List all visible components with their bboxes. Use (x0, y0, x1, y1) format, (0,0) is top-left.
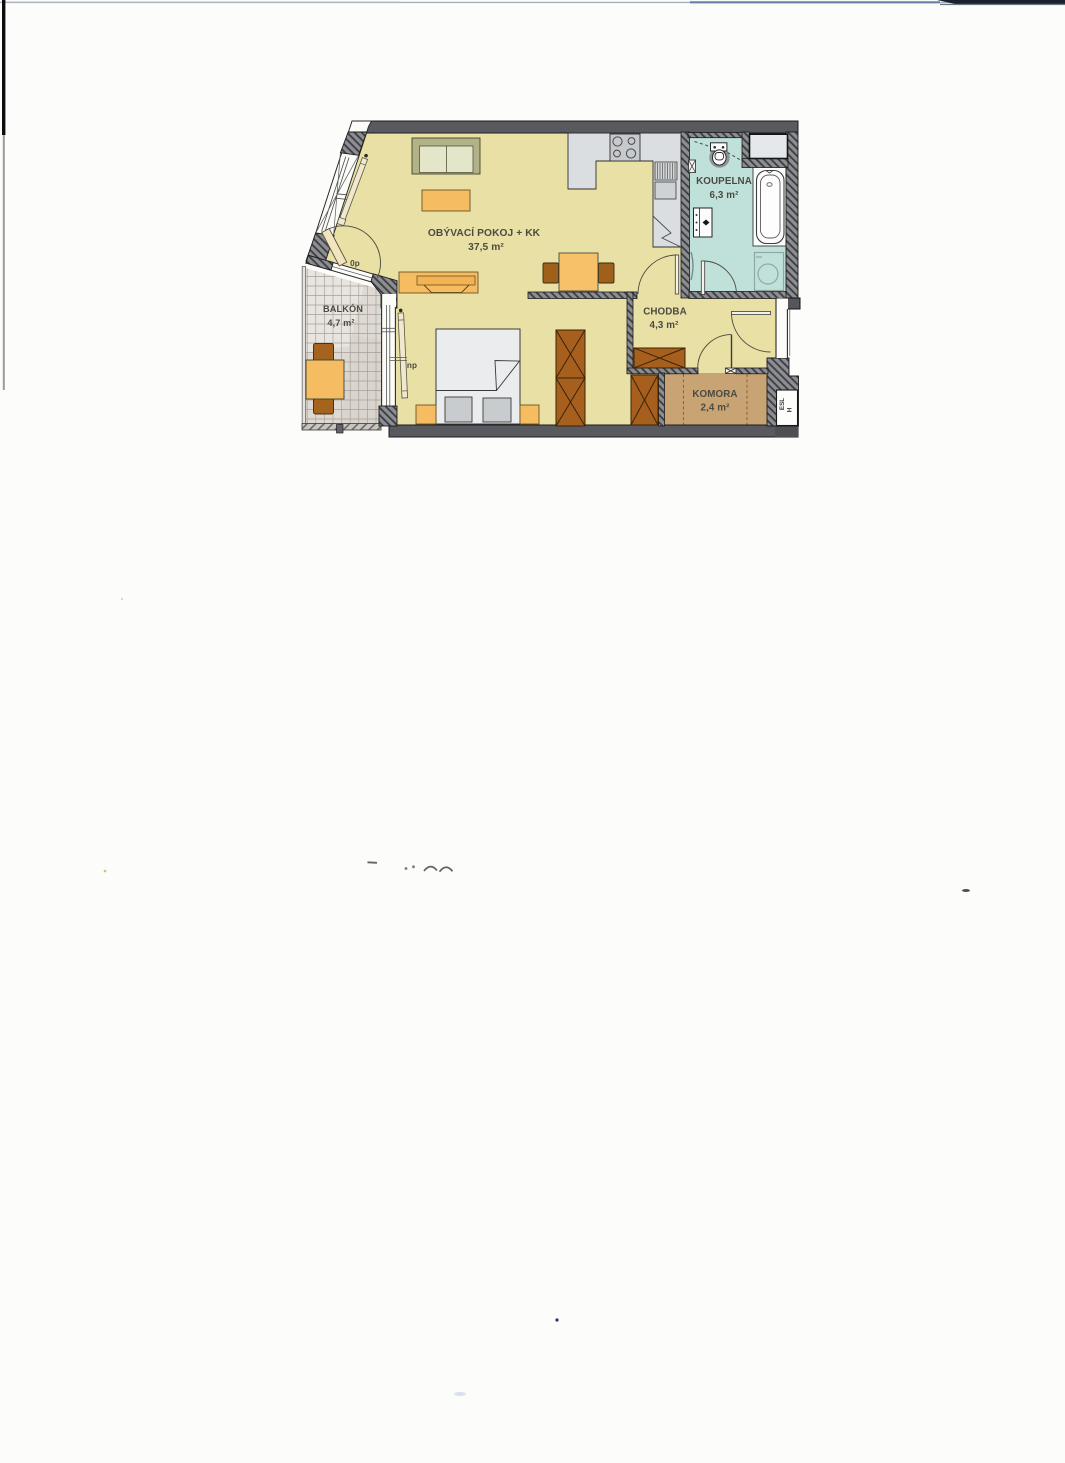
svg-text:4,3 m²: 4,3 m² (650, 320, 680, 331)
svg-text:4,7 m²: 4,7 m² (327, 318, 354, 328)
svg-text:np: np (407, 361, 417, 370)
svg-text:KOUPELNA: KOUPELNA (696, 176, 752, 187)
svg-text:2,4 m²: 2,4 m² (701, 403, 731, 414)
svg-text:ESL: ESL (779, 398, 786, 410)
svg-text:CHODBA: CHODBA (643, 307, 687, 318)
svg-text:0p: 0p (350, 259, 360, 268)
svg-text:37,5 m²: 37,5 m² (468, 242, 504, 253)
svg-text:OBÝVACÍ POKOJ + KK: OBÝVACÍ POKOJ + KK (428, 226, 541, 239)
svg-text:6,3 m²: 6,3 m² (710, 190, 740, 201)
svg-text:H: H (787, 407, 794, 412)
svg-text:KOMORA: KOMORA (692, 389, 737, 400)
svg-text:BALKÓN: BALKÓN (323, 303, 363, 314)
